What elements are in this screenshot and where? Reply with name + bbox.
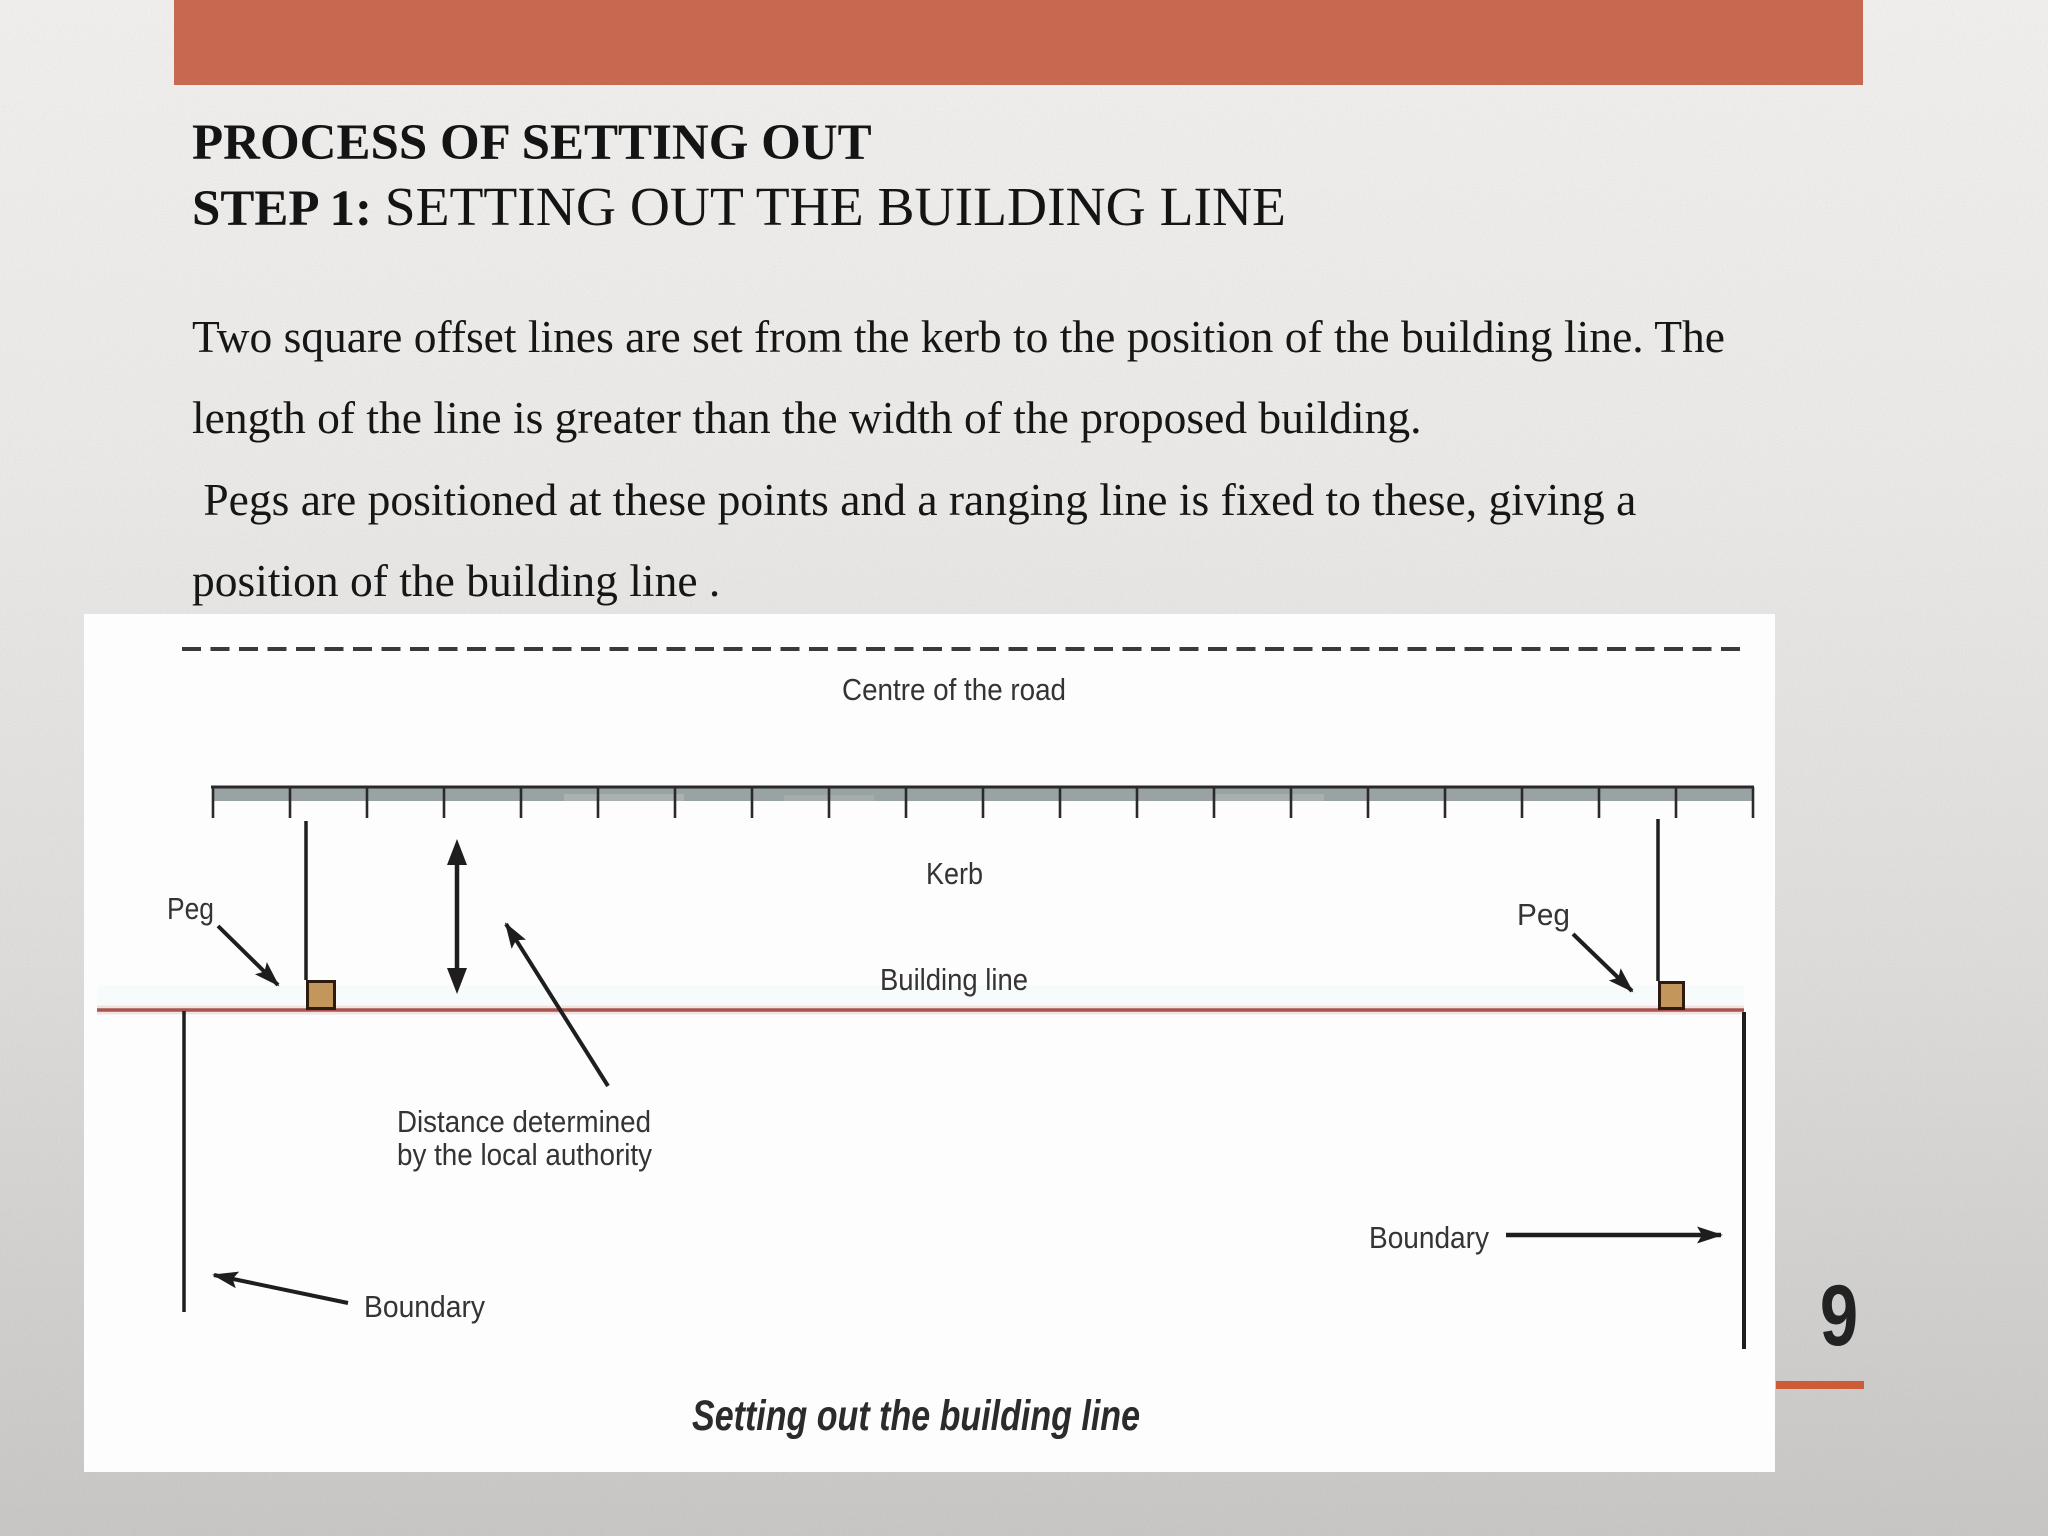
svg-text:Boundary: Boundary — [1369, 1220, 1489, 1255]
svg-text:Building line: Building line — [880, 962, 1028, 997]
svg-text:Peg: Peg — [1517, 897, 1570, 932]
svg-text:by the local authority: by the local authority — [397, 1137, 652, 1172]
svg-text:Boundary: Boundary — [364, 1289, 485, 1324]
svg-text:Centre of the road: Centre of the road — [842, 672, 1066, 707]
svg-text:Kerb: Kerb — [926, 856, 983, 891]
svg-text:Peg: Peg — [167, 891, 214, 926]
svg-text:Distance determined: Distance determined — [397, 1104, 651, 1139]
svg-text:Setting out the building line: Setting out the building line — [692, 1392, 1140, 1440]
